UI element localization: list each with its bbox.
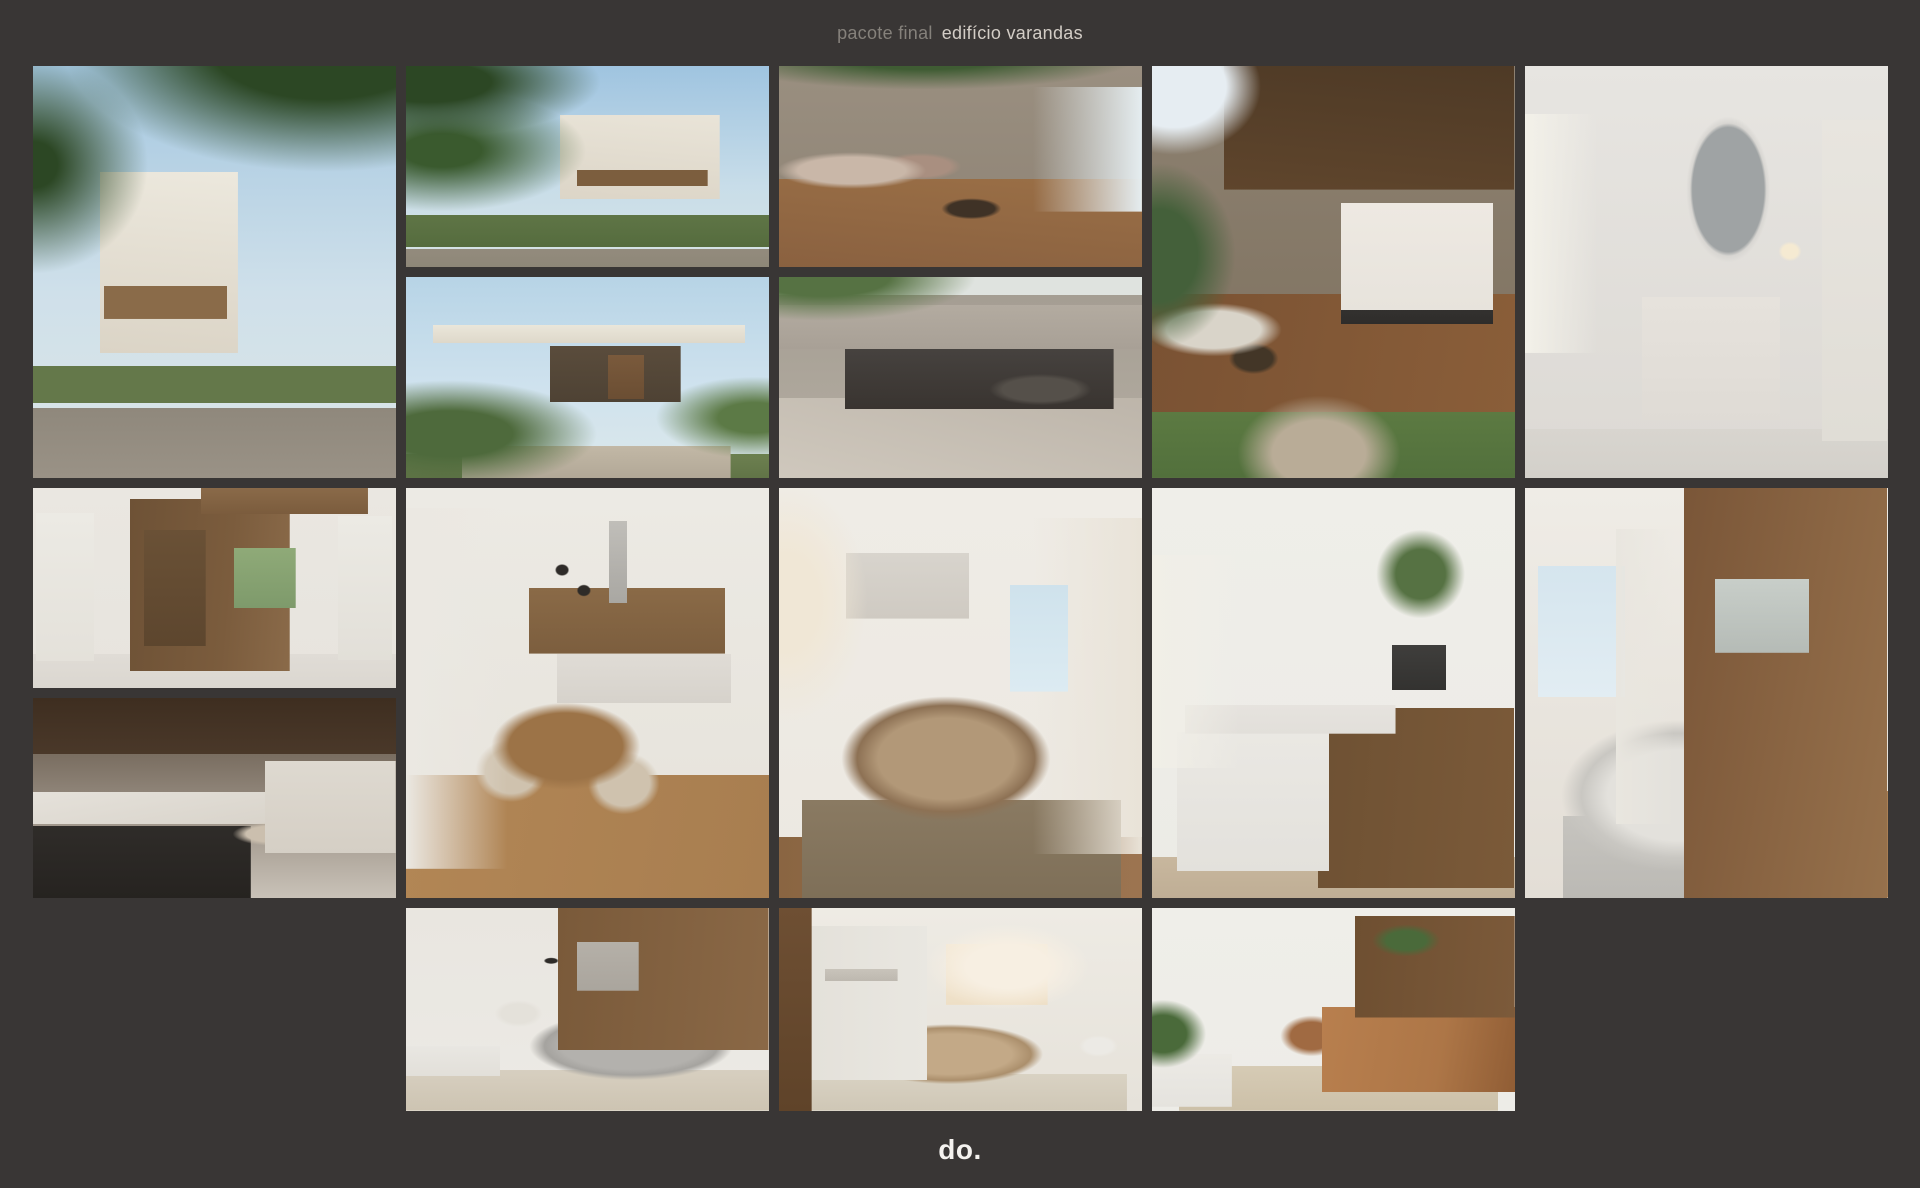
photo-exterior-street-view[interactable] (406, 66, 769, 267)
photo-garage-driveway[interactable] (779, 277, 1142, 478)
photo-kitchen-bar[interactable] (1152, 488, 1515, 898)
presentation-board: pacote final edifício varandas do. (0, 0, 1920, 1188)
photo-living-gray-sofa[interactable] (406, 908, 769, 1111)
header: pacote final edifício varandas (0, 0, 1920, 66)
project-title: edifício varandas (942, 23, 1083, 44)
photo-exterior-front-corner[interactable] (33, 66, 396, 478)
photo-kitchen-living[interactable] (33, 698, 396, 898)
studio-logo: do. (938, 1134, 982, 1166)
photo-entry-garden[interactable] (406, 277, 769, 478)
footer: do. (0, 1111, 1920, 1188)
photo-dining-room[interactable] (406, 488, 769, 898)
photo-elevator-hall[interactable] (33, 488, 396, 688)
photo-bathroom-vanity[interactable] (1525, 66, 1888, 478)
tile-stack-row1-col3 (779, 66, 1142, 478)
gallery-grid (33, 66, 1888, 1111)
photo-gourmet-patio[interactable] (1152, 66, 1515, 478)
photo-living-leather-sofa[interactable] (1152, 908, 1515, 1111)
tile-stack-row1-col2 (406, 66, 769, 478)
tile-stack-row2-col1 (33, 488, 396, 898)
photo-bedroom-ocean-view[interactable] (1525, 488, 1888, 898)
photo-bedroom-sunlit[interactable] (779, 488, 1142, 898)
photo-bedroom-wardrobe[interactable] (779, 908, 1142, 1111)
package-label: pacote final (837, 23, 933, 44)
photo-terrace-lounge[interactable] (779, 66, 1142, 267)
